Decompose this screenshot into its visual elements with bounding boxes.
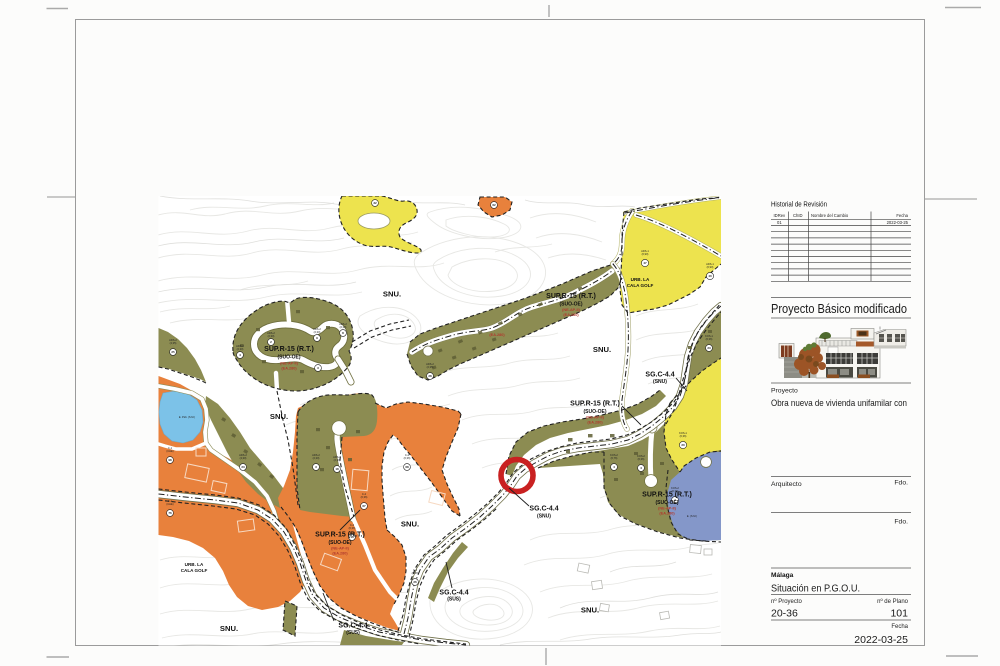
svg-text:(SUO-OE): (SUO-OE) xyxy=(277,355,300,361)
svg-text:(SUS): (SUS) xyxy=(447,597,461,603)
svg-text:20: 20 xyxy=(681,443,685,447)
svg-text:(EA.280): (EA.280) xyxy=(332,552,348,556)
svg-text:CALA GOLF: CALA GOLF xyxy=(181,568,208,573)
svg-text:SG.C-4.4: SG.C-4.4 xyxy=(529,506,558,513)
svg-text:(0,36): (0,36) xyxy=(412,571,419,575)
svg-text:(SUO-OE): (SUO-OE) xyxy=(559,302,582,308)
svg-text:SG.C-4.4: SG.C-4.4 xyxy=(645,372,674,379)
svg-text:(CHE): (CHE) xyxy=(166,502,173,506)
svg-text:23: 23 xyxy=(707,346,711,350)
svg-text:2022-03-25: 2022-03-25 xyxy=(854,634,908,646)
svg-text:(SUO-OE): (SUO-OE) xyxy=(655,500,678,506)
svg-text:(0,90): (0,90) xyxy=(707,265,714,269)
svg-text:(0,76): (0,76) xyxy=(611,456,618,460)
svg-text:(2,35): (2,35) xyxy=(427,365,434,369)
svg-text:(2,30): (2,30) xyxy=(237,347,244,351)
svg-text:(2,30): (2,30) xyxy=(313,456,320,460)
svg-text:(0,90): (0,90) xyxy=(642,252,649,256)
svg-text:Situación en P.G.O.U.: Situación en P.G.O.U. xyxy=(771,584,860,595)
svg-text:(CHE): (CHE) xyxy=(166,449,173,453)
svg-text:(SUO-OE): (SUO-OE) xyxy=(328,540,351,546)
svg-text:(NE-AP-II): (NE-AP-II) xyxy=(562,308,580,312)
svg-text:(2,30): (2,30) xyxy=(340,325,347,329)
svg-text:(EA.280): (EA.280) xyxy=(659,512,675,516)
svg-text:(0,36): (0,36) xyxy=(638,457,645,461)
svg-text:(NE-AP-II): (NE-AP-II) xyxy=(586,416,604,420)
svg-text:(0,36): (0,36) xyxy=(349,526,356,530)
svg-text:(4,30): (4,30) xyxy=(240,456,247,460)
svg-text:SNU.: SNU. xyxy=(383,290,401,299)
svg-text:SUP.R-15 (R.T.): SUP.R-15 (R.T.) xyxy=(642,492,692,499)
svg-text:(NE-AP-II): (NE-AP-II) xyxy=(658,507,676,511)
svg-text:ChID: ChID xyxy=(793,213,803,218)
svg-text:67: 67 xyxy=(362,504,366,508)
svg-text:Nombre del Cambio: Nombre del Cambio xyxy=(811,213,849,218)
svg-text:Proyecto Básico modificado: Proyecto Básico modificado xyxy=(771,301,907,316)
svg-text:(2,30): (2,30) xyxy=(268,334,275,338)
svg-text:(SUO-OE): (SUO-OE) xyxy=(583,409,606,415)
svg-text:Málaga: Málaga xyxy=(771,572,794,579)
svg-text:(0,36): (0,36) xyxy=(404,456,411,460)
svg-text:SNU.: SNU. xyxy=(401,520,419,529)
svg-text:URB. LA: URB. LA xyxy=(631,277,650,282)
svg-text:(SNU): (SNU) xyxy=(653,379,667,385)
svg-text:SUP.R-15 (R.T.): SUP.R-15 (R.T.) xyxy=(570,401,620,408)
svg-text:20-36: 20-36 xyxy=(771,608,798,620)
svg-text:(EA.280): (EA.280) xyxy=(489,333,505,337)
svg-text:76: 76 xyxy=(168,511,172,515)
svg-text:98: 98 xyxy=(168,458,172,462)
svg-text:32: 32 xyxy=(373,201,377,205)
svg-text:40: 40 xyxy=(708,274,712,278)
svg-text:Historial de Revisión: Historial de Revisión xyxy=(771,202,827,209)
svg-text:25: 25 xyxy=(171,350,175,354)
svg-text:CALA GOLF: CALA GOLF xyxy=(627,283,654,288)
svg-text:E. Púb. (S.M.): E. Púb. (S.M.) xyxy=(179,415,195,419)
svg-text:(SNU): (SNU) xyxy=(537,514,551,520)
svg-text:28: 28 xyxy=(428,374,432,378)
svg-text:Fdo.: Fdo. xyxy=(894,480,908,487)
svg-text:IDRev: IDRev xyxy=(774,213,787,218)
svg-text:nº de Plano: nº de Plano xyxy=(877,598,909,605)
svg-text:(NE-AP-II): (NE-AP-II) xyxy=(331,547,349,551)
svg-text:(SUS): (SUS) xyxy=(346,630,360,636)
svg-text:SUP.R-15 (R.T.): SUP.R-15 (R.T.) xyxy=(264,346,314,353)
svg-text:SNU.: SNU. xyxy=(220,624,238,633)
svg-text:26: 26 xyxy=(413,580,417,584)
svg-text:SG.C-4.4: SG.C-4.4 xyxy=(439,590,468,597)
svg-text:101: 101 xyxy=(890,608,908,620)
svg-text:(NE-AP-II): (NE-AP-II) xyxy=(280,362,298,366)
svg-text:(4,35): (4,35) xyxy=(170,341,177,345)
svg-text:(EA.280): (EA.280) xyxy=(563,313,579,317)
svg-text:68: 68 xyxy=(405,465,409,469)
svg-text:Obra nueva de vivienda unifami: Obra nueva de vivienda unifamilar con xyxy=(771,398,907,408)
svg-text:23: 23 xyxy=(241,465,245,469)
svg-text:SUP.R-15 (R.T.): SUP.R-15 (R.T.) xyxy=(315,532,365,539)
svg-text:SUP.R-15 (R.T.): SUP.R-15 (R.T.) xyxy=(546,293,596,300)
svg-text:E. (S.M.): E. (S.M.) xyxy=(687,514,697,518)
svg-text:2022-03-25: 2022-03-25 xyxy=(887,220,909,225)
svg-text:Arquitecto: Arquitecto xyxy=(771,481,802,488)
svg-text:(0,36): (0,36) xyxy=(706,337,713,341)
svg-text:SNU.: SNU. xyxy=(593,345,611,354)
svg-text:(0,36): (0,36) xyxy=(680,434,687,438)
svg-text:(2,30): (2,30) xyxy=(314,330,321,334)
svg-text:(EA.280): (EA.280) xyxy=(281,367,297,371)
svg-text:(0,36): (0,36) xyxy=(361,495,368,499)
svg-text:62: 62 xyxy=(492,203,496,207)
svg-text:Fecha: Fecha xyxy=(891,624,908,630)
svg-text:URB. LA: URB. LA xyxy=(185,562,204,567)
svg-text:Fecha: Fecha xyxy=(896,213,908,218)
svg-text:(2,30): (2,30) xyxy=(334,458,341,462)
svg-text:Proyecto: Proyecto xyxy=(771,388,798,395)
svg-text:SNU.: SNU. xyxy=(581,606,599,615)
svg-text:SNU.: SNU. xyxy=(270,412,288,421)
svg-text:18: 18 xyxy=(335,467,339,471)
svg-text:SG.C-4.4: SG.C-4.4 xyxy=(338,623,367,630)
svg-text:nº Proyecto: nº Proyecto xyxy=(771,598,803,605)
svg-text:47: 47 xyxy=(643,261,647,265)
svg-text:01: 01 xyxy=(777,220,782,225)
svg-text:Fdo.: Fdo. xyxy=(894,519,908,526)
svg-text:(EA.280): (EA.280) xyxy=(587,421,603,425)
